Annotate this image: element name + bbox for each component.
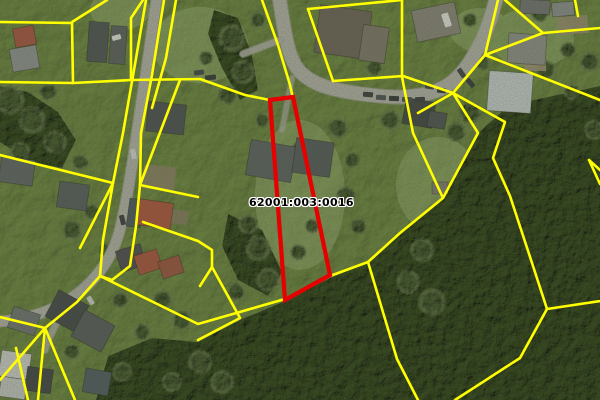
aerial-map-canvas (0, 0, 600, 400)
map-viewport[interactable]: 62001:003:0016 (0, 0, 600, 400)
